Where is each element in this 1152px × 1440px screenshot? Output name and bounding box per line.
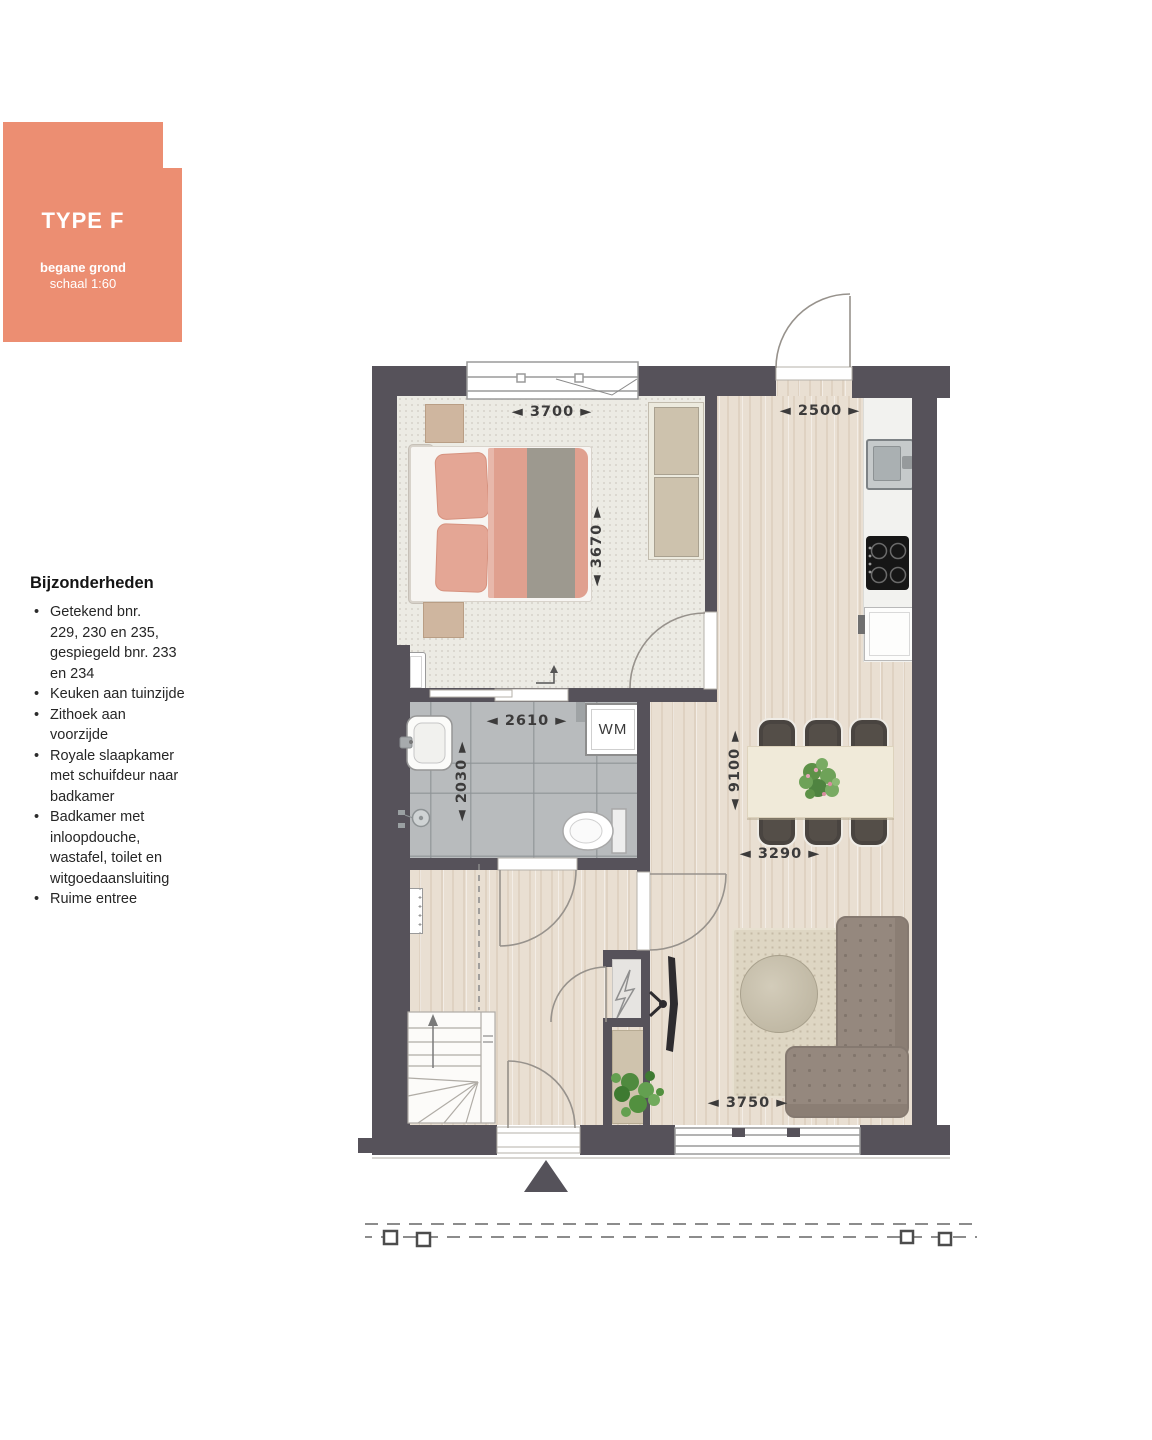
nightstand: [423, 602, 464, 638]
meter-closet-wall: [641, 950, 650, 1027]
meter-closet-wall: [603, 950, 612, 967]
dim-bathroom-width: ◄ 2610 ►: [487, 713, 568, 729]
niche-wall: [643, 1027, 650, 1125]
wall: [638, 366, 776, 396]
wall: [372, 1125, 497, 1155]
wall: [372, 645, 410, 1155]
dim-kitchen-width: ◄ 2500 ►: [780, 403, 861, 419]
dining-table: [747, 746, 894, 818]
dim-bedroom-width: ◄ 3700 ►: [512, 404, 593, 420]
duct: [576, 702, 585, 722]
wall-bedroom-east: [705, 396, 717, 613]
pillow: [435, 523, 489, 593]
dim-bedroom-depth: ◄ 3670 ►: [589, 506, 605, 587]
dining-chair: [757, 813, 797, 847]
nightstand: [425, 404, 464, 443]
meter-closet-wall: [603, 1018, 650, 1027]
wardrobe-door: [654, 477, 699, 557]
window-mullion: [732, 1128, 745, 1137]
dim-dining-width: ◄ 3290 ►: [740, 846, 821, 862]
coffee-table: [740, 955, 818, 1033]
wall-bathroom-east: [637, 702, 650, 872]
front-door-threshold: [497, 1127, 580, 1153]
washing-machine-label: WM: [599, 721, 628, 738]
wall: [358, 1138, 372, 1153]
floor-plan: WM: [0, 0, 1152, 1440]
back-door-swing: [776, 294, 850, 368]
washing-machine: WM: [585, 703, 641, 756]
dining-chair: [803, 813, 843, 847]
bedroom-window: [467, 362, 638, 399]
backdoor-threshold-floor: [776, 368, 852, 396]
wall-bedroom-south: [397, 688, 717, 702]
pillow: [434, 452, 489, 521]
wall: [580, 1125, 675, 1155]
wall-bathroom-south: [397, 858, 650, 870]
wall: [852, 366, 950, 398]
dim-bathroom-depth: ◄ 2030 ►: [454, 741, 470, 822]
wardrobe: [648, 402, 704, 560]
kitchen-sink: [866, 439, 914, 490]
sofa: [836, 916, 909, 1058]
dim-living-depth: ◄ 9100 ►: [727, 730, 743, 811]
sideboard: [612, 1030, 645, 1124]
cooktop: [866, 536, 909, 590]
living-window: [675, 1128, 860, 1154]
sofa-chaise: [785, 1046, 909, 1118]
dining-chair: [849, 813, 889, 847]
window-mullion: [787, 1128, 800, 1137]
cabinet-handle: [858, 615, 865, 634]
site-boundary: [365, 1224, 977, 1246]
niche-wall: [603, 1027, 612, 1125]
meter-closet: [612, 959, 643, 1020]
wall: [912, 396, 937, 1128]
wall: [860, 1125, 950, 1155]
wardrobe-door: [654, 407, 699, 475]
bed-throw: [527, 448, 575, 598]
hall-panel: [409, 888, 423, 934]
kitchen-cabinet: [864, 607, 915, 661]
dim-living-width: ◄ 3750 ►: [708, 1095, 789, 1111]
entrance-arrow-icon: [524, 1160, 568, 1192]
wall: [372, 366, 397, 645]
